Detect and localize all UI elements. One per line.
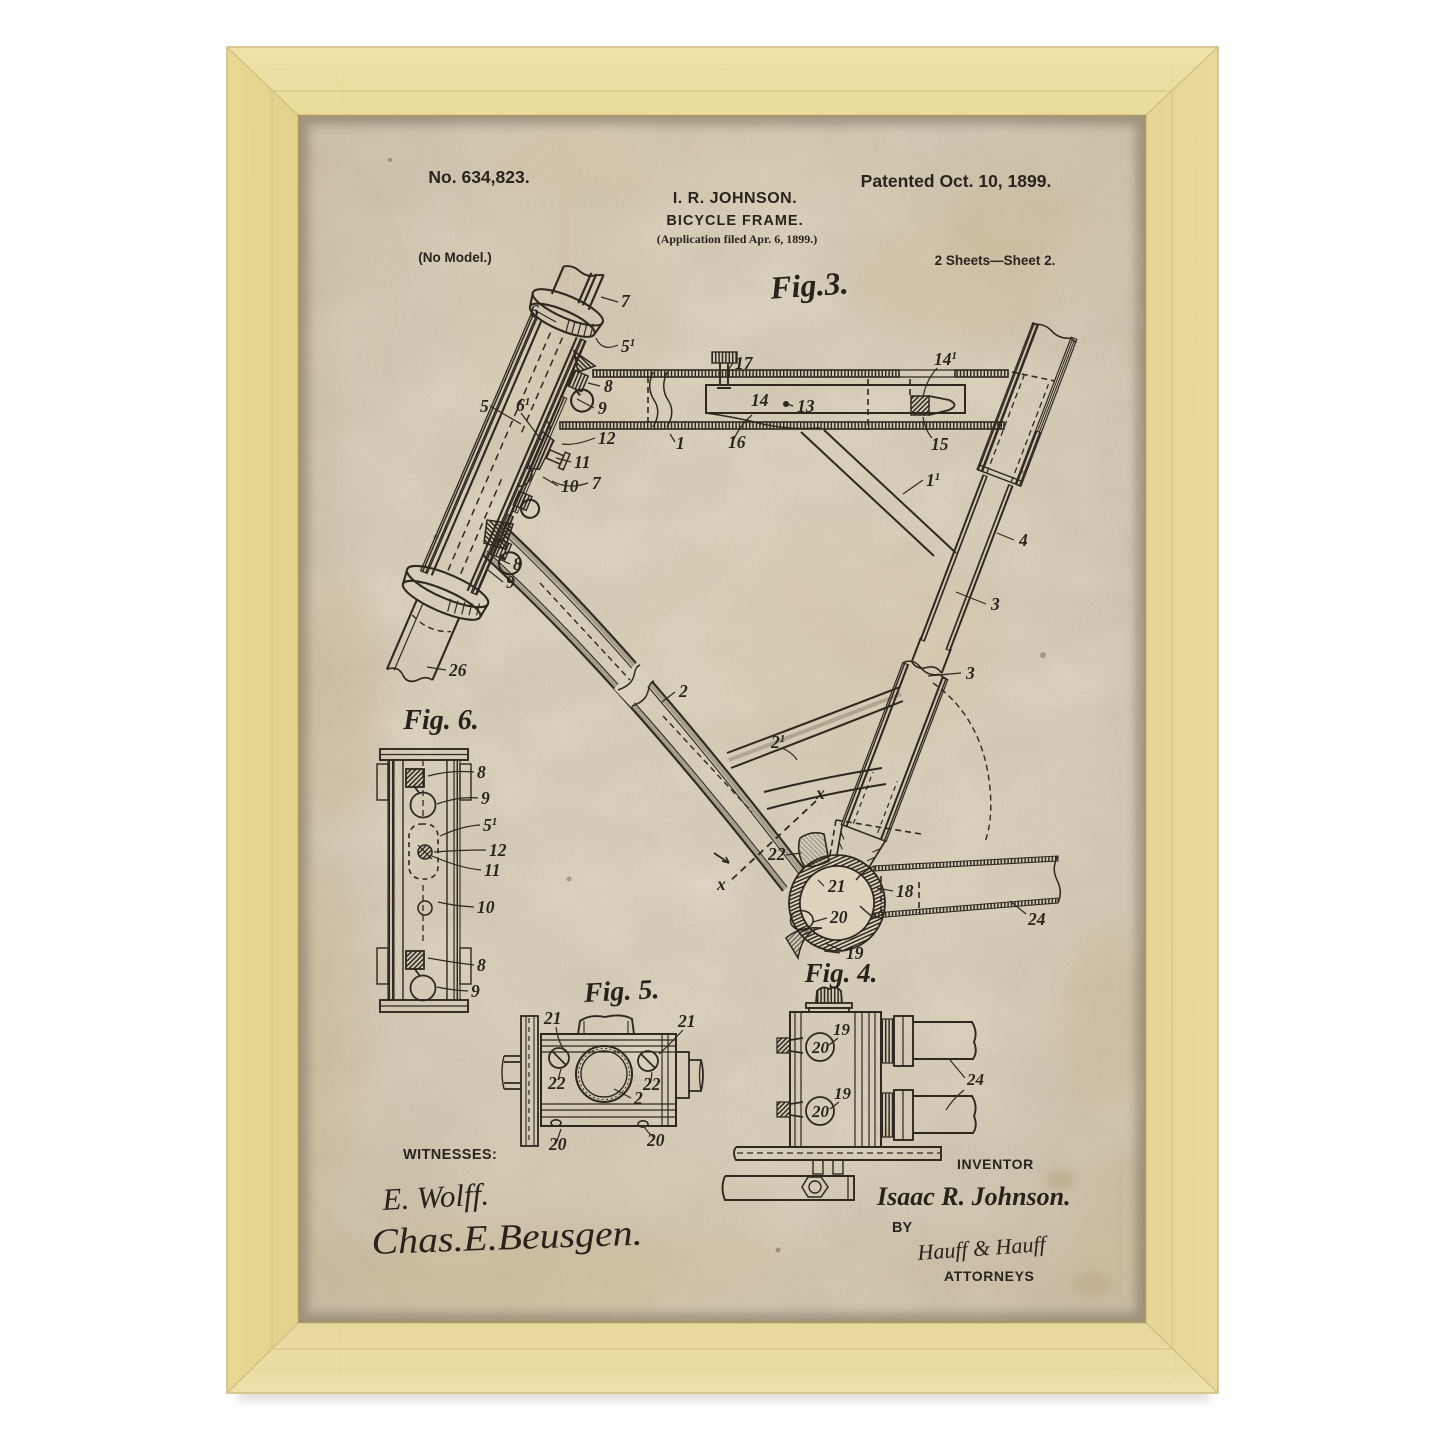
svg-text:11: 11: [574, 452, 591, 472]
svg-text:Isaac R. Johnson.: Isaac R. Johnson.: [876, 1182, 1071, 1211]
svg-text:3: 3: [990, 594, 1000, 614]
svg-text:22: 22: [547, 1073, 566, 1093]
svg-text:2: 2: [633, 1088, 643, 1108]
svg-text:24: 24: [966, 1070, 984, 1089]
svg-text:7: 7: [592, 473, 602, 493]
svg-text:21: 21: [677, 1011, 696, 1031]
svg-text:16: 16: [728, 432, 746, 452]
svg-text:Fig. 4.: Fig. 4.: [804, 958, 878, 988]
svg-text:Fig. 5.: Fig. 5.: [582, 974, 660, 1009]
svg-text:8: 8: [513, 554, 522, 574]
svg-text:8: 8: [477, 955, 486, 975]
svg-text:21: 21: [827, 876, 846, 896]
svg-text:21: 21: [543, 1008, 562, 1028]
svg-text:13: 13: [797, 396, 815, 416]
svg-text:E. Wolff.: E. Wolff.: [381, 1176, 490, 1217]
svg-text:WITNESSES:: WITNESSES:: [403, 1147, 497, 1163]
svg-text:19: 19: [834, 1084, 852, 1103]
svg-text:6: 6: [530, 301, 539, 321]
svg-text:x: x: [716, 874, 726, 894]
svg-text:2: 2: [678, 681, 688, 701]
svg-text:Fig. 6.: Fig. 6.: [402, 705, 478, 736]
svg-text:20: 20: [811, 1102, 830, 1121]
svg-text:20: 20: [811, 1038, 830, 1057]
svg-text:3: 3: [965, 663, 975, 683]
svg-text:17: 17: [735, 353, 754, 373]
svg-text:BY: BY: [892, 1220, 912, 1236]
svg-text:ATTORNEYS: ATTORNEYS: [944, 1268, 1034, 1284]
svg-text:No. 634,823.: No. 634,823.: [428, 167, 529, 187]
svg-text:12: 12: [598, 428, 616, 448]
svg-text:12: 12: [489, 840, 507, 860]
svg-text:8: 8: [604, 376, 613, 396]
svg-text:BICYCLE FRAME.: BICYCLE FRAME.: [666, 213, 803, 229]
svg-text:1: 1: [676, 433, 685, 453]
svg-text:Patented Oct. 10, 1899.: Patented Oct. 10, 1899.: [861, 171, 1052, 191]
svg-text:x: x: [815, 783, 825, 803]
svg-text:20: 20: [829, 907, 848, 927]
svg-text:24: 24: [1027, 909, 1046, 929]
svg-text:(No Model.): (No Model.): [418, 250, 492, 265]
svg-text:(Application filed Apr. 6, 189: (Application filed Apr. 6, 1899.): [657, 232, 818, 246]
svg-text:2 Sheets—Sheet 2.: 2 Sheets—Sheet 2.: [935, 253, 1056, 268]
svg-text:4: 4: [1018, 530, 1028, 550]
svg-text:18: 18: [896, 881, 914, 901]
svg-text:9: 9: [481, 788, 490, 808]
svg-text:10: 10: [477, 897, 495, 917]
svg-text:8: 8: [477, 762, 486, 782]
svg-text:15: 15: [931, 434, 949, 454]
svg-text:11: 11: [484, 860, 501, 880]
svg-text:9: 9: [598, 398, 607, 418]
svg-text:INVENTOR: INVENTOR: [957, 1156, 1034, 1172]
svg-text:20: 20: [548, 1134, 567, 1154]
svg-text:9: 9: [506, 572, 515, 592]
svg-text:19: 19: [833, 1020, 851, 1039]
svg-text:I. R. JOHNSON.: I. R. JOHNSON.: [673, 190, 797, 207]
svg-text:26: 26: [448, 660, 467, 680]
svg-text:14: 14: [751, 390, 769, 410]
svg-text:5: 5: [480, 396, 489, 416]
svg-text:7: 7: [621, 291, 631, 311]
svg-text:22: 22: [767, 844, 786, 864]
svg-text:9: 9: [471, 981, 480, 1001]
svg-text:Fig.3.: Fig.3.: [768, 264, 850, 305]
